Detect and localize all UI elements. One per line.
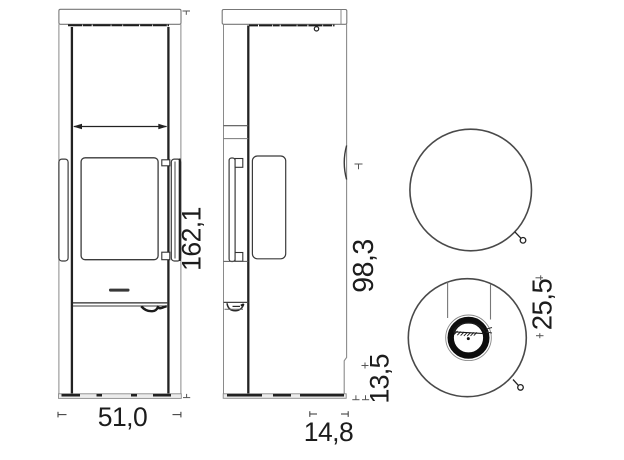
svg-text:14,8: 14,8	[304, 417, 354, 447]
svg-text:25,5: 25,5	[527, 279, 558, 331]
svg-text:162,1: 162,1	[177, 207, 207, 271]
svg-text:51,0: 51,0	[98, 402, 148, 432]
svg-text:98,3: 98,3	[348, 239, 380, 292]
svg-text:13,5: 13,5	[365, 354, 395, 403]
